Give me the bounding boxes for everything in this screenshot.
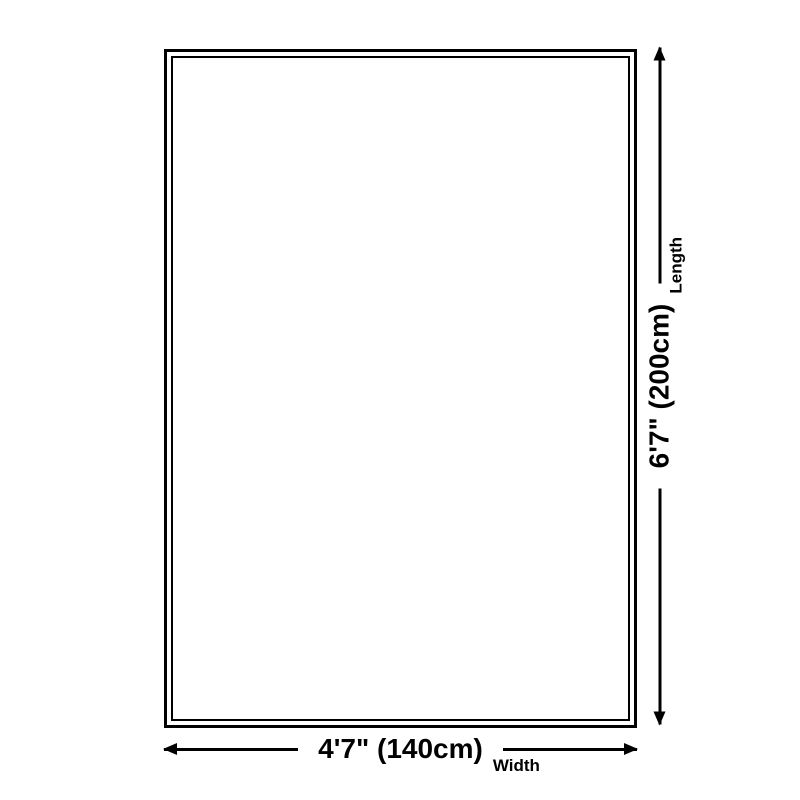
arrow-head-down-icon (654, 712, 666, 726)
arrow-head-up-icon (654, 46, 666, 60)
length-value: 6'7" (200cm) (646, 284, 674, 489)
width-label: Width (493, 757, 540, 774)
arrow-head-left-icon (163, 743, 177, 755)
width-value: 4'7" (140cm) (298, 735, 503, 763)
width-arrow-left-shaft (164, 748, 298, 751)
length-arrow-lower-shaft (658, 488, 661, 724)
width-arrow-right-shaft: Width (503, 748, 637, 751)
rug-outline-inner (171, 56, 630, 721)
width-dimension: 4'7" (140cm) Width (164, 733, 637, 765)
length-dimension: 6'7" (200cm) Length (644, 48, 676, 725)
arrow-head-right-icon (624, 743, 638, 755)
rug-outline (164, 49, 637, 728)
length-arrow-upper-shaft: Length (658, 47, 661, 283)
dimension-diagram: 6'7" (200cm) Length 4'7" (140cm) Width (0, 0, 800, 800)
length-label: Length (667, 237, 684, 294)
